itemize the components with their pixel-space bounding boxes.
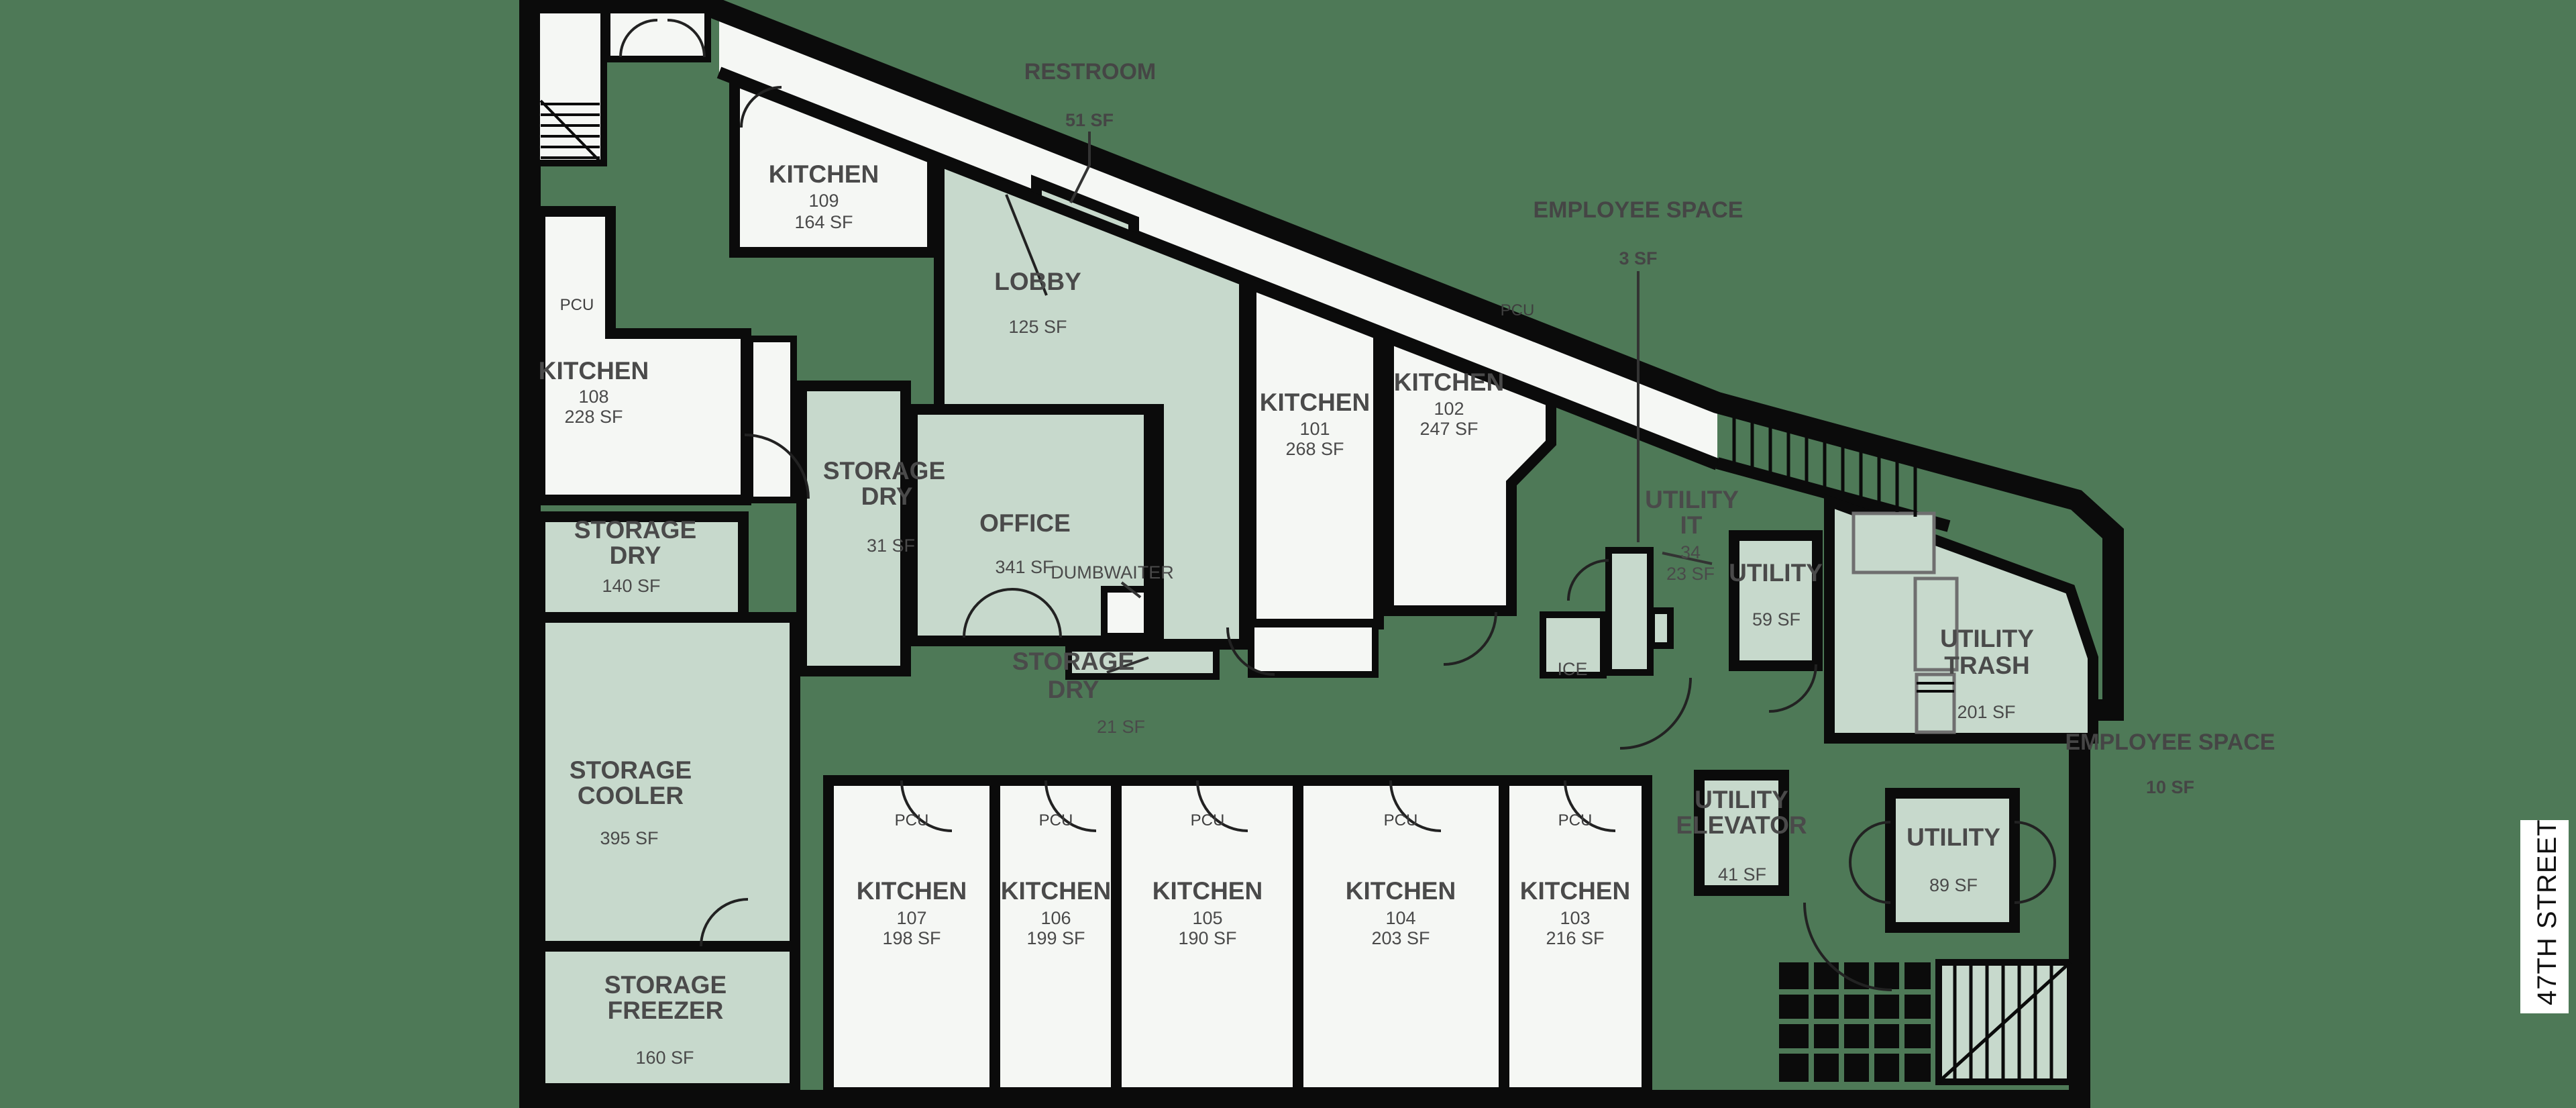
storage-cooler-area: 395 SF xyxy=(600,828,658,848)
kitchen-101-area: 268 SF xyxy=(1285,439,1344,459)
street-label: 47TH STREET xyxy=(2532,819,2562,1005)
storage-dry-center-area: 21 SF xyxy=(1097,717,1145,737)
utility-it-line2: IT xyxy=(1680,511,1703,539)
kitchen-104-name: KITCHEN xyxy=(1346,877,1456,905)
storage-dry-main-line1: STORAGE xyxy=(574,516,696,544)
room-storage-dry-side xyxy=(802,386,906,671)
storage-dry-side-area: 31 SF xyxy=(867,536,915,556)
utility-elevator-area: 41 SF xyxy=(1718,864,1766,885)
room-utility-small xyxy=(1734,536,1817,666)
floor-plan-drawing: KITCHEN 109 164 SF PCU KITCHEN 108 228 S… xyxy=(0,0,2576,1108)
kitchen-105-area: 190 SF xyxy=(1178,928,1236,948)
storage-cooler-line1: STORAGE xyxy=(570,756,692,784)
utility-small-area: 59 SF xyxy=(1752,609,1801,629)
kitchen-107-number: 107 xyxy=(896,908,926,928)
pcu-label-kitchen-103: PCU xyxy=(1558,811,1593,829)
kitchen-101-name: KITCHEN xyxy=(1260,389,1370,416)
employee-space-right-annotation: EMPLOYEE SPACE xyxy=(2065,729,2275,755)
office-area: 341 SF xyxy=(995,557,1053,577)
storage-freezer-area: 160 SF xyxy=(635,1048,694,1068)
pcu-label-kitchen-102: PCU xyxy=(1501,301,1535,319)
kitchen-109-name: KITCHEN xyxy=(769,160,879,188)
kitchen-103-area: 216 SF xyxy=(1546,928,1604,948)
restroom-annotation: RESTROOM xyxy=(1024,59,1156,85)
kitchen-106-area: 199 SF xyxy=(1026,928,1085,948)
storage-dry-side-line1: STORAGE xyxy=(823,457,945,485)
restroom-area: 51 SF xyxy=(1065,110,1114,130)
dumbwaiter-label: DUMBWAITER xyxy=(1051,562,1174,583)
utility-small-name: UTILITY xyxy=(1729,559,1823,587)
room-utility-it xyxy=(1609,550,1650,672)
employee-space-top-annotation: EMPLOYEE SPACE xyxy=(1534,197,1743,223)
kitchen-102-number: 102 xyxy=(1434,399,1464,419)
kitchen-108-name: KITCHEN xyxy=(539,357,649,385)
kitchen-109-number: 109 xyxy=(808,191,839,211)
storage-dry-center-line1: STORAGE xyxy=(1012,648,1134,675)
pcu-label-kitchen-108: PCU xyxy=(560,296,594,314)
utility-trash-line2: TRASH xyxy=(1944,652,2029,679)
utility-rear-area: 89 SF xyxy=(1929,875,1978,895)
kitchen-108-area: 228 SF xyxy=(564,407,623,427)
kitchen-107-name: KITCHEN xyxy=(857,877,967,905)
storage-cooler-line2: COOLER xyxy=(578,782,684,809)
office-name: OFFICE xyxy=(979,509,1071,537)
utility-rear-name: UTILITY xyxy=(1907,823,2000,851)
utility-it-line1: UTILITY xyxy=(1645,486,1739,513)
kitchen-105-number: 105 xyxy=(1192,908,1222,928)
closet-strip xyxy=(750,339,794,500)
utility-trash-line1: UTILITY xyxy=(1940,625,2034,652)
storage-freezer-line2: FREEZER xyxy=(608,997,724,1024)
lobby-name: LOBBY xyxy=(994,268,1081,295)
lobby-area: 125 SF xyxy=(1008,317,1067,337)
utility-elevator-line2: ELEVATOR xyxy=(1676,811,1807,839)
employee-space-right-area: 10 SF xyxy=(2146,777,2194,797)
kitchen-104-area: 203 SF xyxy=(1371,928,1430,948)
kitchen-106-name: KITCHEN xyxy=(1001,877,1111,905)
kitchen-107-area: 198 SF xyxy=(882,928,941,948)
kitchen-106-number: 106 xyxy=(1040,908,1071,928)
pcu-label-kitchen-105: PCU xyxy=(1191,811,1225,829)
utility-elevator-line1: UTILITY xyxy=(1695,786,1788,813)
stair-shaft-top-left xyxy=(537,10,604,163)
corridor-stub xyxy=(1251,624,1375,674)
kitchen-103-number: 103 xyxy=(1560,908,1590,928)
storage-dry-center-line2: DRY xyxy=(1048,676,1099,703)
storage-freezer-line1: STORAGE xyxy=(604,971,727,999)
pcu-label-kitchen-107: PCU xyxy=(895,811,929,829)
kitchen-102-area: 247 SF xyxy=(1419,419,1478,439)
kitchen-101-number: 101 xyxy=(1299,419,1330,439)
utility-it-line3: 34 xyxy=(1680,542,1701,562)
ice-label: ICE xyxy=(1557,659,1587,679)
storage-dry-main-area: 140 SF xyxy=(602,576,660,596)
pcu-label-kitchen-106: PCU xyxy=(1039,811,1073,829)
storage-dry-main-line2: DRY xyxy=(610,542,661,569)
kitchen-104-number: 104 xyxy=(1385,908,1415,928)
pcu-label-kitchen-104: PCU xyxy=(1384,811,1418,829)
kitchen-108-number: 108 xyxy=(578,387,608,407)
utility-trash-area: 201 SF xyxy=(1957,702,2015,722)
kitchen-109-area: 164 SF xyxy=(794,212,853,232)
employee-space-top-area: 3 SF xyxy=(1619,248,1657,268)
utility-it-area: 23 SF xyxy=(1666,564,1715,584)
floor-plan-page: KITCHEN 109 164 SF PCU KITCHEN 108 228 S… xyxy=(0,0,2576,1108)
kitchen-103-name: KITCHEN xyxy=(1520,877,1630,905)
room-utility-rear xyxy=(1890,793,2015,927)
storage-dry-side-line2: DRY xyxy=(861,483,913,510)
room-utility-it-niche xyxy=(1652,611,1670,646)
kitchen-105-name: KITCHEN xyxy=(1152,877,1263,905)
kitchen-102-name: KITCHEN xyxy=(1394,368,1504,396)
